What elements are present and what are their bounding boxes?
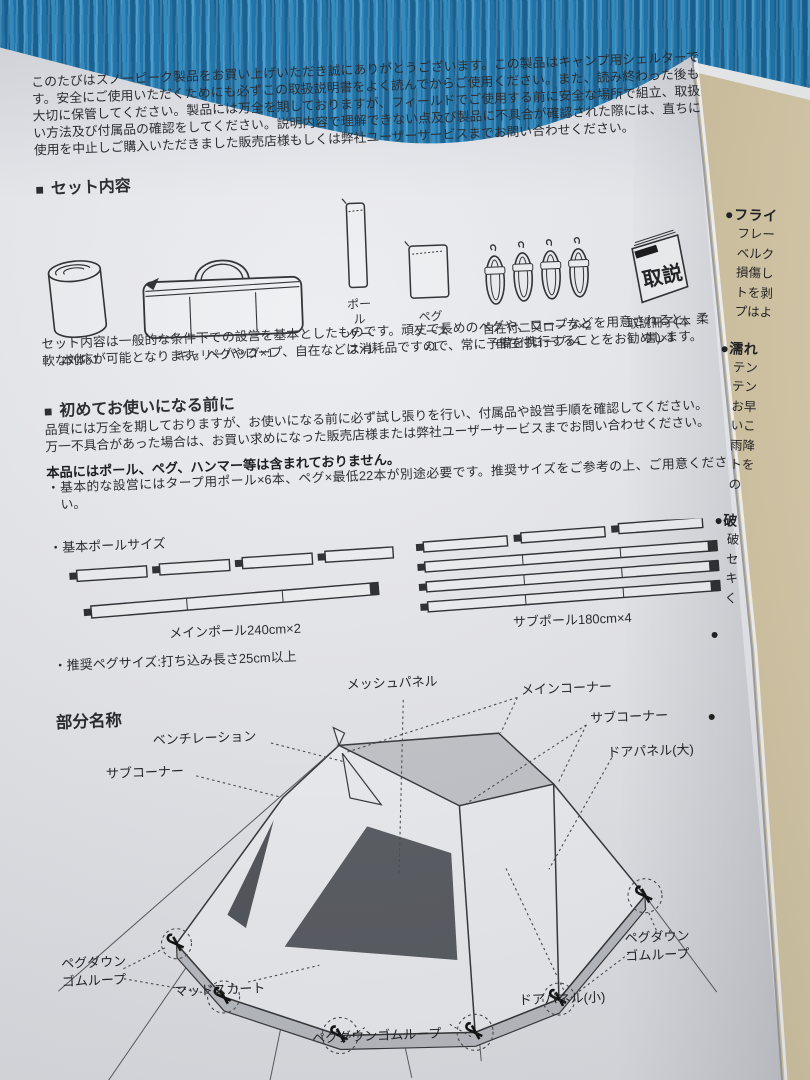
set-contents-heading: ■セット内容 [35,172,131,200]
label-mud-skirt: マッドスカート [174,979,266,1000]
main-pole-segments-icon [62,546,404,625]
basic-pole-size-label: ・基本ポールサイズ [49,535,166,556]
label-door-panel-small: ドアパネル(小) [519,988,606,1009]
sub-pole-label: サブポール180cm×4 [513,607,632,631]
label-peg-loop-left: ペグダウン ゴムループ [61,953,127,991]
bullet-title: ● [710,624,810,648]
square-bullet-icon: ■ [35,181,44,197]
pole-case-icon [341,193,373,294]
intro-paragraph: このたびはスノーピーク製品をお買い上げいただき誠にありがとうございます。この製品… [31,48,702,159]
label-main-corner: メインコーナー [521,678,613,699]
text-fragment: の [715,474,810,498]
manual-page-photo: ●フライ フレー ベルク 損傷し トを剥 プはよ ●濡れ テン テン お早 いこ… [0,0,810,1080]
next-page-section: ●濡れ テン テン お早 いこ 雨降 トを の [715,337,810,498]
peg-case-icon [403,229,454,307]
label-sub-corner-right: サブコーナー [590,707,669,728]
main-pole-label: メインポール240cm×2 [169,618,301,642]
label-mesh-panel: メッシュパネル [346,673,438,694]
main-pole-diagram: メインポール240cm×2 [60,546,408,646]
manual-page-content: このたびはスノーピーク製品をお買い上げいただき誠にありがとうございます。この製品… [22,22,737,1080]
square-bullet-icon: ■ [44,403,53,419]
label-door-panel-large: ドアパネル(大) [607,741,694,762]
recommended-peg-size: ・推奨ペグサイズ:打ち込み長さ25cm以上 [53,648,296,674]
set-contents-heading-text: セット内容 [51,178,132,198]
tent-parts-diagram: メッシュパネル メインコーナー サブコーナー ドアパネル(大) ベンチレーション… [46,656,771,1080]
sub-pole-segments-icon [411,517,729,613]
peak-flag [333,727,345,745]
text-fragment: プはよ [721,302,810,326]
guy-ropes-icon [477,226,592,318]
manual-booklet-icon: 取説 [619,224,694,313]
next-page-section: ● [710,624,810,648]
sub-pole-diagram: サブポール180cm×4 [409,517,733,634]
label-sub-corner-left: サブコーナー [106,762,185,783]
next-page-section: ●フライ フレー ベルク 損傷し トを剥 プはよ [721,204,810,326]
label-peg-loop-right: ペグダウン ゴムループ [624,927,690,965]
